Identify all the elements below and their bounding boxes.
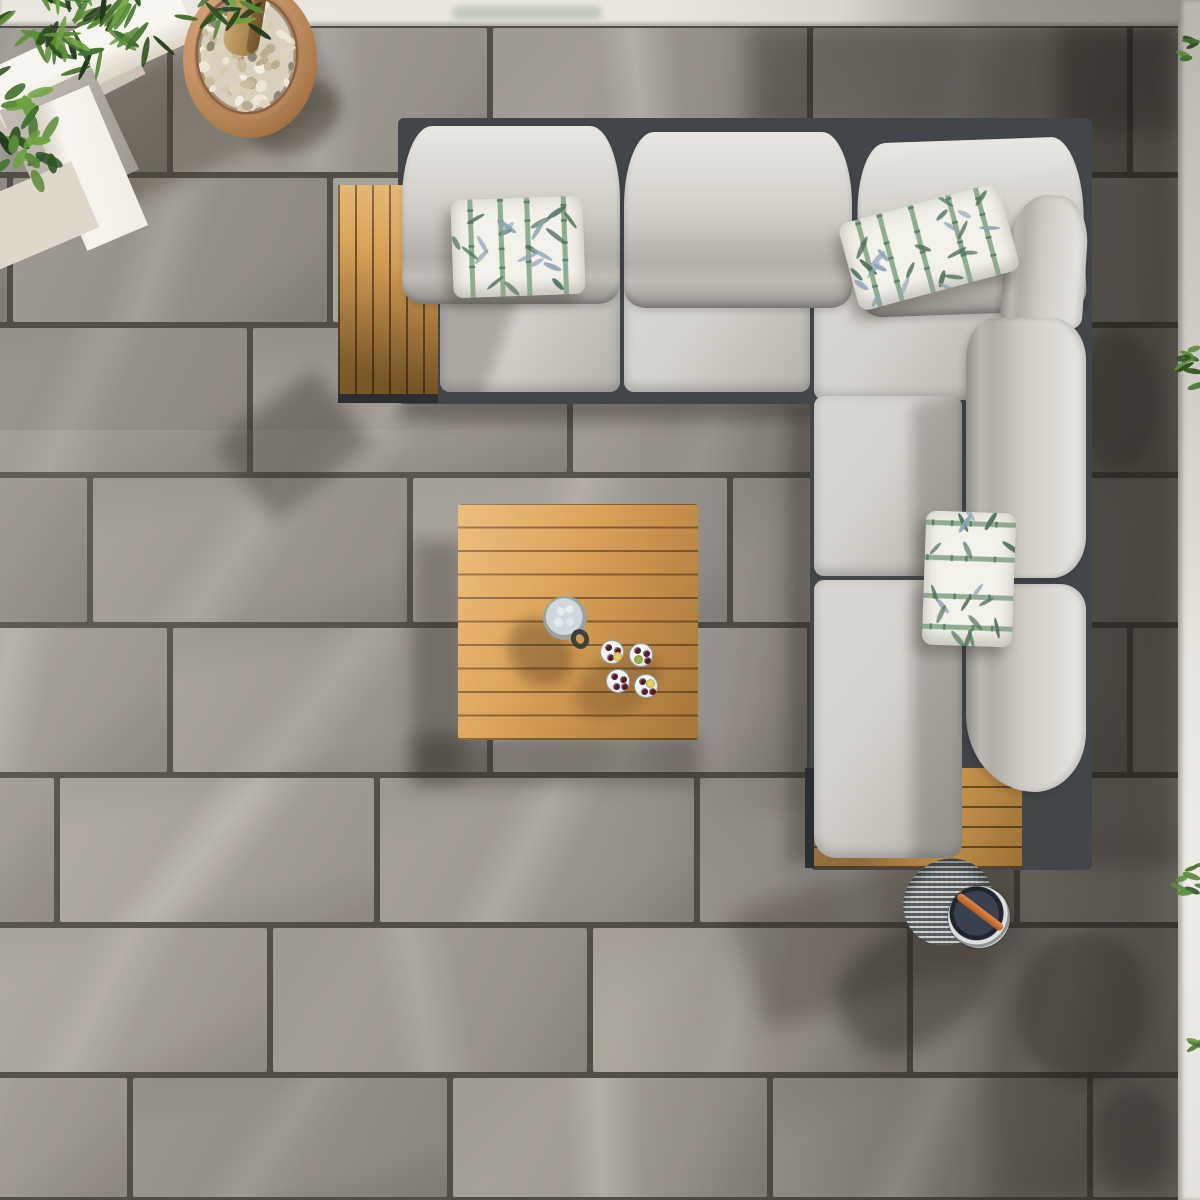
tumbler (629, 643, 653, 667)
trailing-plant-leaves (1150, 0, 1200, 1200)
bottom-side-table-frame (805, 768, 814, 868)
left-side-table-frame (338, 394, 438, 403)
tumbler (634, 674, 658, 698)
tumbler (606, 669, 630, 693)
floor-tile (773, 1078, 1087, 1197)
leaf (140, 36, 152, 67)
cherry-garnish (621, 683, 628, 690)
leaf (174, 13, 198, 22)
leaf (0, 157, 12, 175)
cherry-garnish (634, 647, 641, 654)
cherry-garnish (620, 676, 627, 683)
tumbler (600, 640, 624, 664)
lemon-garnish (646, 679, 655, 688)
bamboo-print-pillow (922, 510, 1017, 647)
leaf (28, 168, 48, 194)
olive-tree-foliage (0, 0, 325, 235)
cherry-garnish (644, 657, 651, 664)
wall-green-streak (452, 6, 602, 20)
cherry-garnish (649, 688, 656, 695)
floor-tile (593, 928, 907, 1072)
lemon-garnish (613, 652, 622, 661)
cherry-garnish (641, 688, 648, 695)
back-bolster-cushion (624, 132, 852, 308)
cherry-garnish (605, 644, 612, 651)
lime-garnish (634, 655, 643, 664)
bamboo-print-pillow (450, 196, 585, 299)
cherry-garnish (613, 683, 620, 690)
cherry-garnish (643, 650, 650, 657)
leaf (26, 85, 54, 100)
leaf (247, 21, 273, 41)
cherry-garnish (639, 678, 646, 685)
patio-scene (0, 0, 1200, 1200)
leaf (1187, 380, 1200, 392)
cherry-garnish (611, 673, 618, 680)
leaf (0, 64, 12, 88)
leaf (152, 34, 176, 57)
